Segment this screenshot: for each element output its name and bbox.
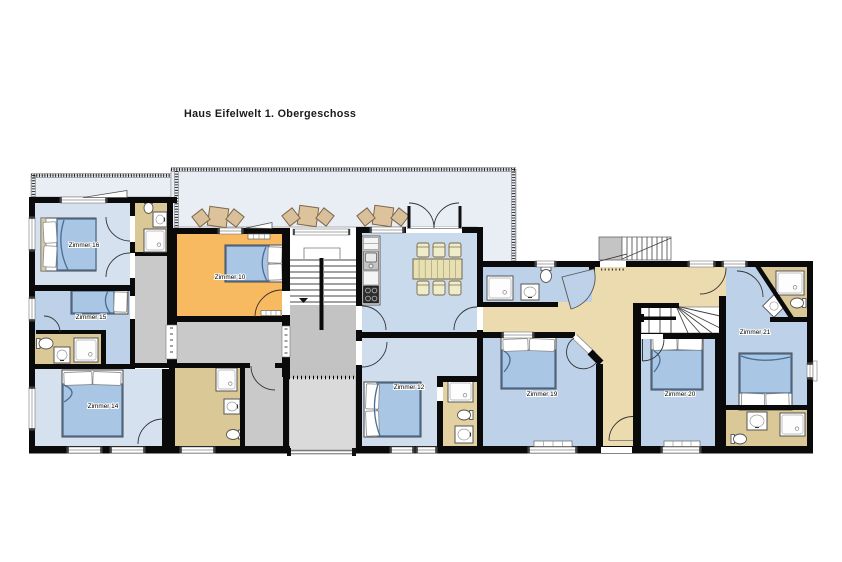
- svg-text:Zimmer 20: Zimmer 20: [665, 391, 696, 398]
- svg-text:Zimmer 14: Zimmer 14: [88, 403, 119, 410]
- svg-text:Zimmer 16: Zimmer 16: [69, 242, 100, 249]
- svg-text:Zimmer 19: Zimmer 19: [527, 391, 558, 398]
- svg-text:Haus Eifelwelt 1. Obergeschoss: Haus Eifelwelt 1. Obergeschoss: [184, 108, 356, 120]
- svg-text:Zimmer 12: Zimmer 12: [394, 384, 425, 391]
- svg-text:Zimmer 21: Zimmer 21: [740, 329, 771, 336]
- svg-text:Zimmer 10: Zimmer 10: [215, 274, 246, 281]
- svg-text:Zimmer 15: Zimmer 15: [76, 314, 107, 321]
